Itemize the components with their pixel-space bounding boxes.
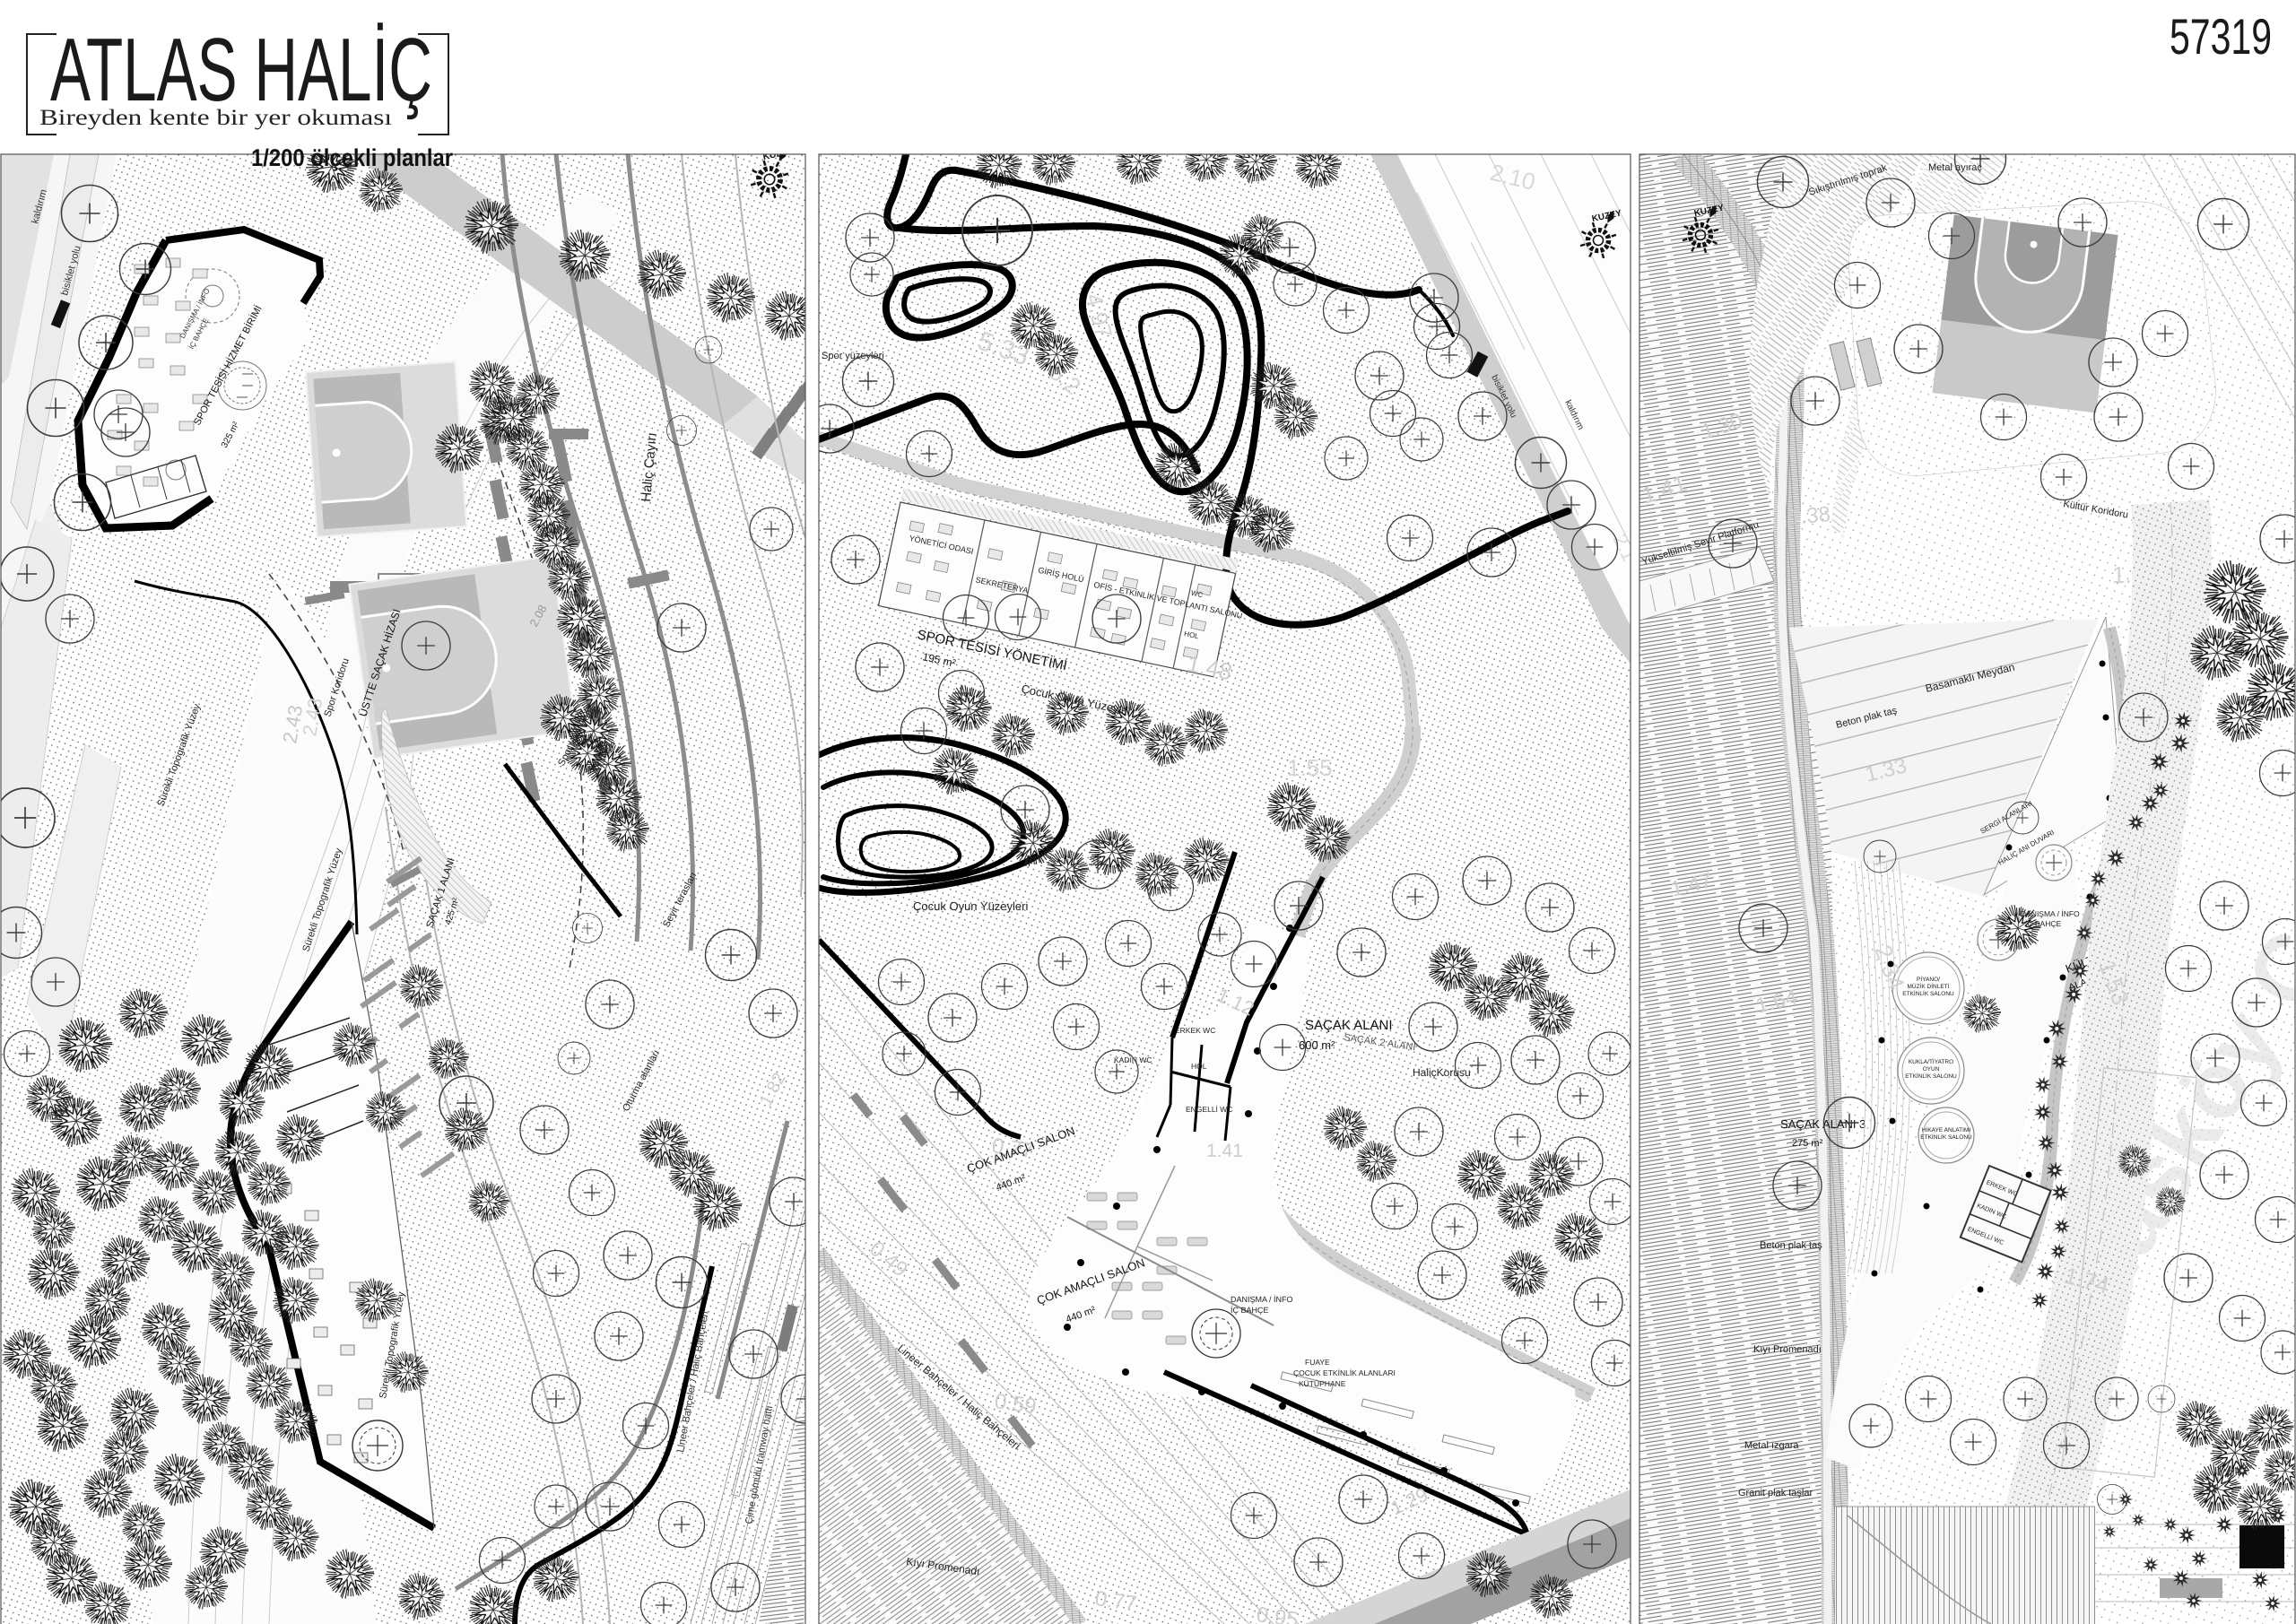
svg-text:KUKLA/TİYATRO: KUKLA/TİYATRO: [1909, 1058, 1953, 1065]
svg-text:Bireyden kente bir yer okuması: Bireyden kente bir yer okuması: [39, 106, 392, 130]
svg-text:Kıyı Promenadı: Kıyı Promenadı: [1753, 1344, 1822, 1355]
svg-text:Çocuk Oyun Yüzeyleri: Çocuk Oyun Yüzeyleri: [913, 899, 1028, 913]
svg-text:57319: 57319: [2170, 8, 2272, 65]
svg-text:Metal ızgara: Metal ızgara: [1744, 1440, 1799, 1451]
svg-text:HİKAYE ANLATIMI: HİKAYE ANLATIMI: [1922, 1126, 1970, 1133]
svg-text:SAÇAK ALANI 3: SAÇAK ALANI 3: [1780, 1117, 1865, 1131]
svg-text:ÇOCUK ETKİNLİK ALANLARI: ÇOCUK ETKİNLİK ALANLARI: [1293, 1368, 1396, 1377]
svg-text:ETKİNLİK SALONU: ETKİNLİK SALONU: [1905, 1073, 1957, 1080]
svg-text:İÇ BAHÇE: İÇ BAHÇE: [1231, 1306, 1269, 1315]
svg-text:KADIN WC: KADIN WC: [1114, 1055, 1152, 1064]
svg-text:SAÇAK ALANI: SAÇAK ALANI: [1305, 1018, 1393, 1033]
svg-text:HOL: HOL: [1191, 1062, 1207, 1071]
svg-text:1.38: 1.38: [1787, 502, 1831, 530]
svg-text:KÜTÜPHANE: KÜTÜPHANE: [1299, 1379, 1346, 1388]
svg-text:Beton plak taş: Beton plak taş: [1760, 1240, 1822, 1251]
svg-text:ENGELLİ WC: ENGELLİ WC: [1186, 1105, 1232, 1114]
svg-text:ETKİNLİK SALONU: ETKİNLİK SALONU: [1902, 990, 1954, 997]
svg-text:PİYANO/: PİYANO/: [1917, 976, 1940, 983]
svg-text:HaliçKorusu: HaliçKorusu: [1413, 1066, 1471, 1079]
svg-text:FUAYE: FUAYE: [1305, 1358, 1330, 1367]
svg-text:DANIŞMA / İNFO: DANIŞMA / İNFO: [2021, 909, 2080, 918]
svg-text:DANIŞMA / İNFO: DANIŞMA / İNFO: [1231, 1295, 1293, 1304]
svg-text:275 m²: 275 m²: [1792, 1138, 1823, 1149]
svg-text:ERKEK WC: ERKEK WC: [1175, 1026, 1215, 1035]
svg-text:ETKİNLİK SALONU: ETKİNLİK SALONU: [1920, 1133, 1972, 1141]
svg-text:MÜZİK DİNLETİ: MÜZİK DİNLETİ: [1908, 983, 1950, 990]
svg-text:1/200 ölçekli planlar: 1/200 ölçekli planlar: [251, 144, 453, 171]
svg-text:Granit plak taşlar: Granit plak taşlar: [1738, 1488, 1813, 1498]
svg-text:1.41: 1.41: [1206, 1141, 1243, 1161]
svg-text:1.55: 1.55: [1287, 754, 1333, 781]
svg-text:OYUN: OYUN: [1923, 1066, 1940, 1073]
